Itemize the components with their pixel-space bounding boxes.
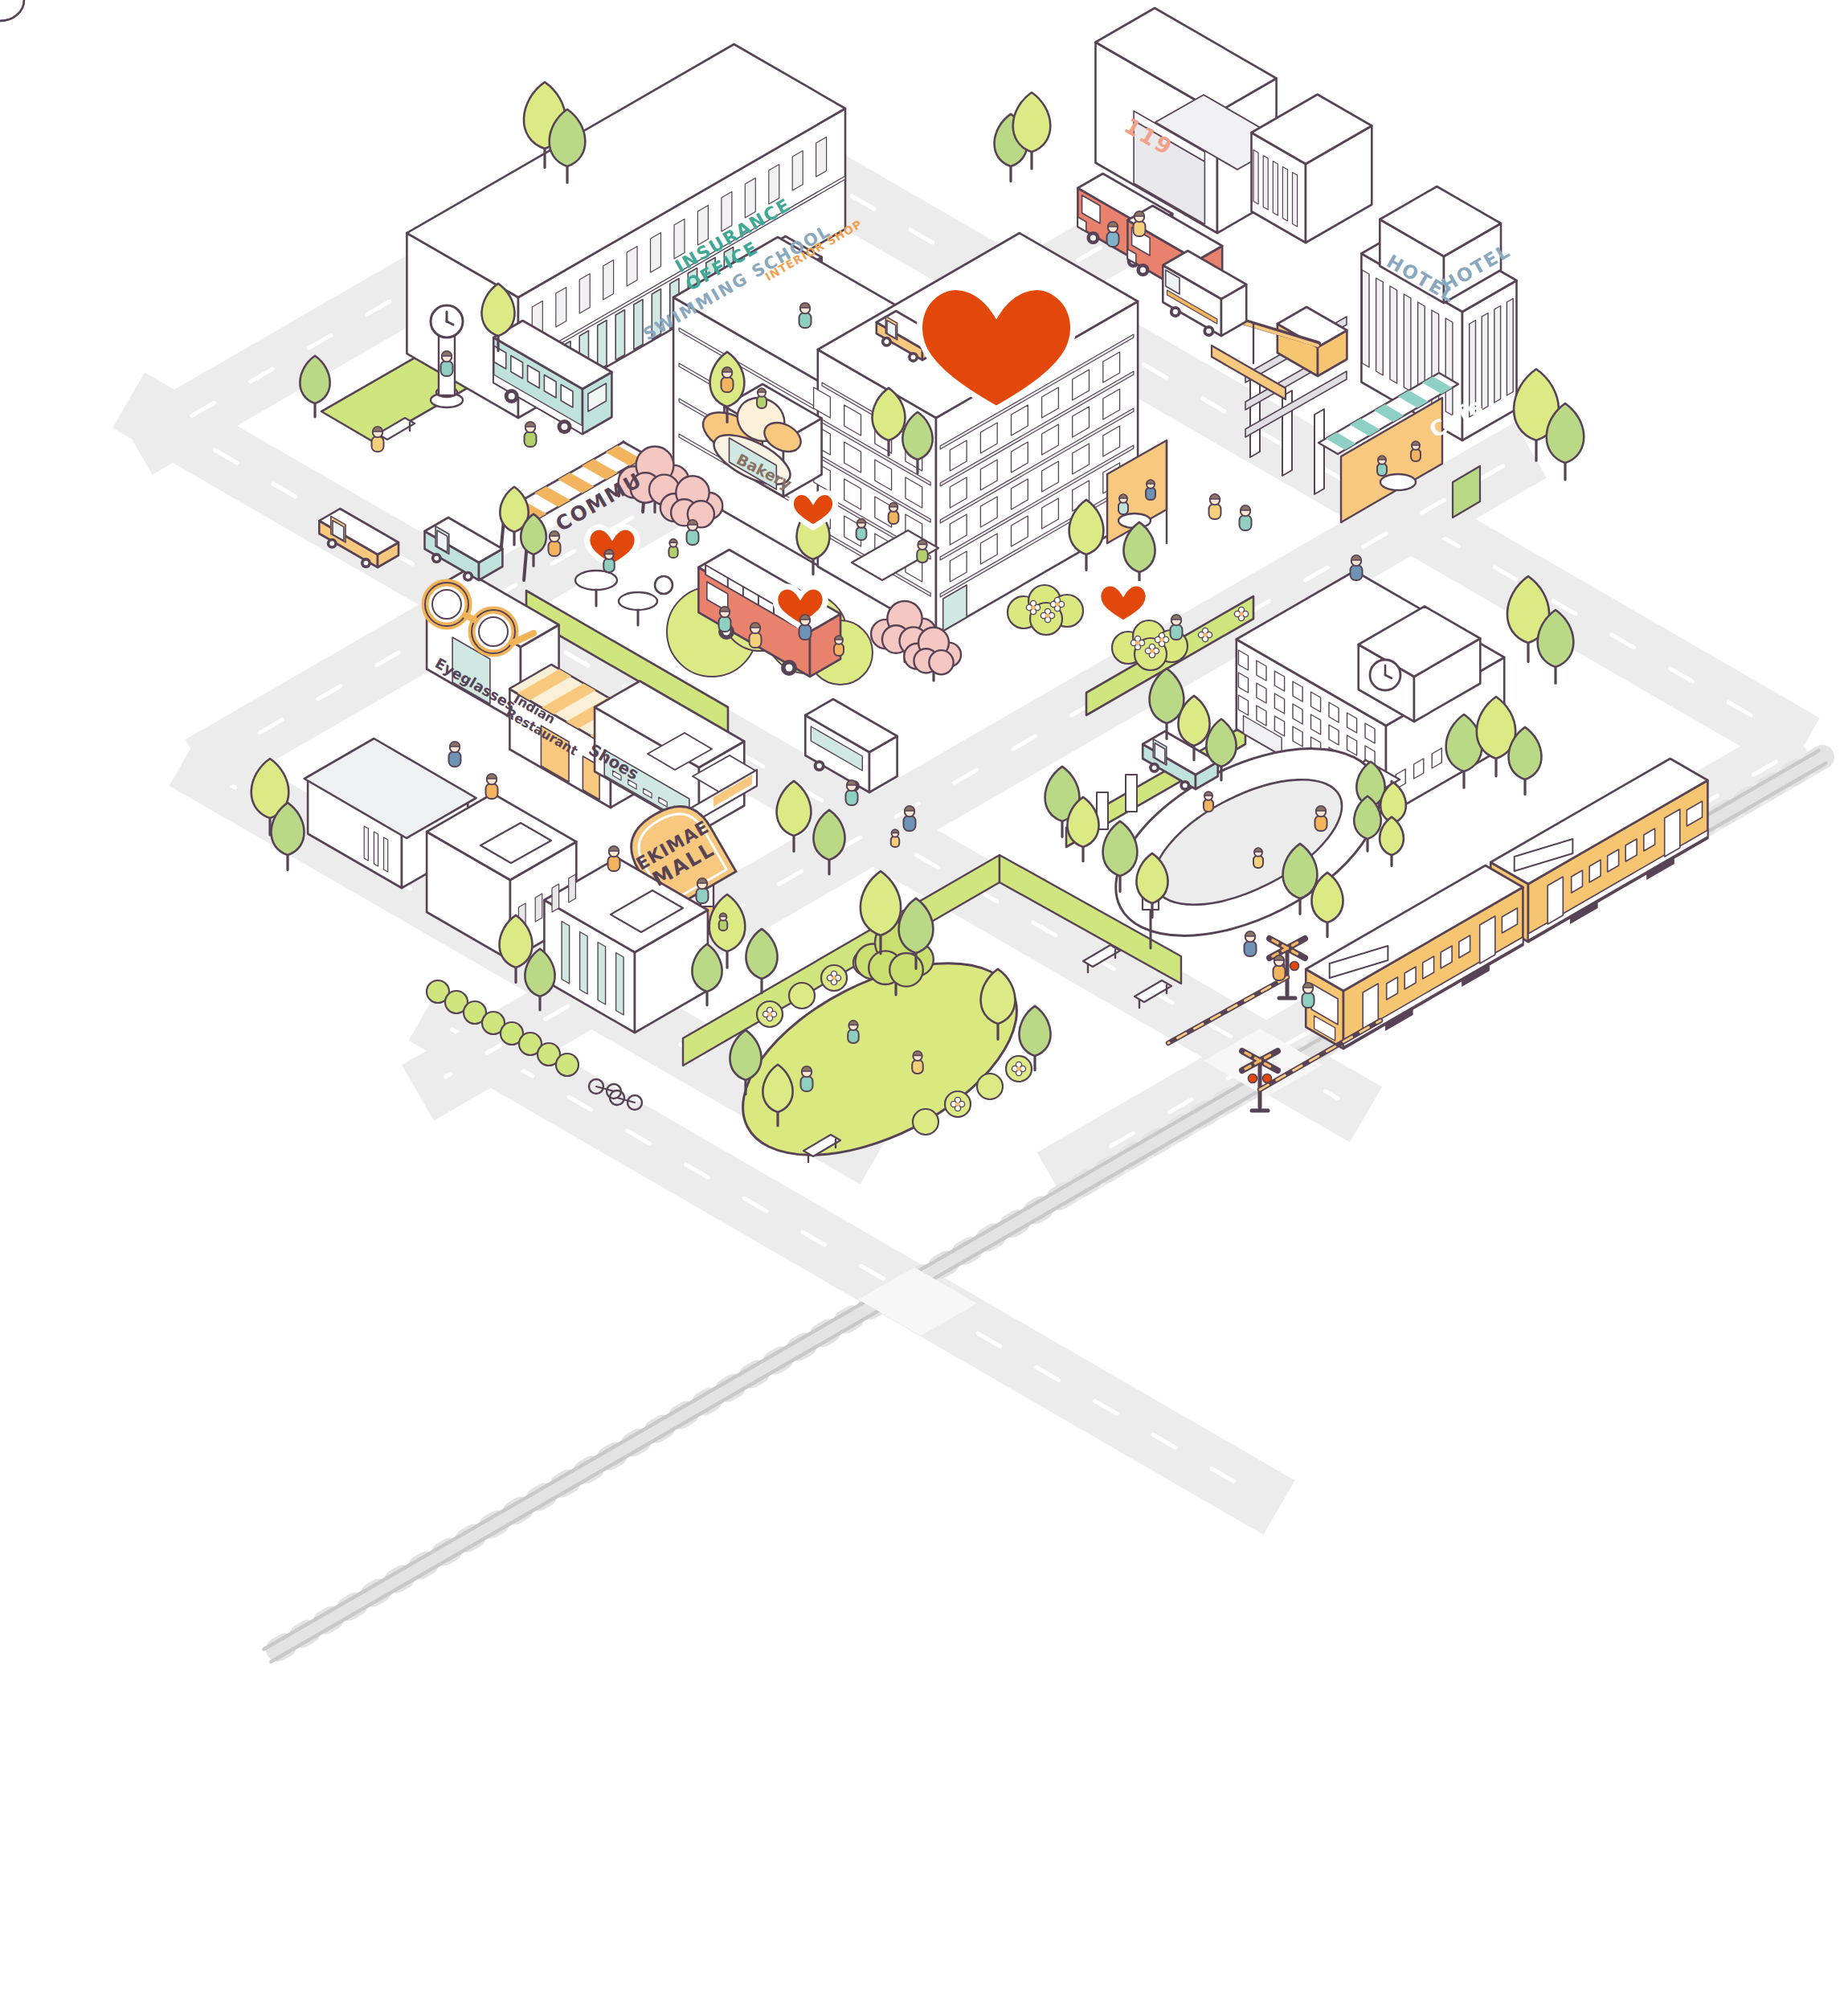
isometric-town-illustration: INSURANCE OFFICE SWIMMING SCHOOL INTERIO… — [0, 0, 1848, 2009]
small-heart-icon — [1098, 583, 1148, 623]
